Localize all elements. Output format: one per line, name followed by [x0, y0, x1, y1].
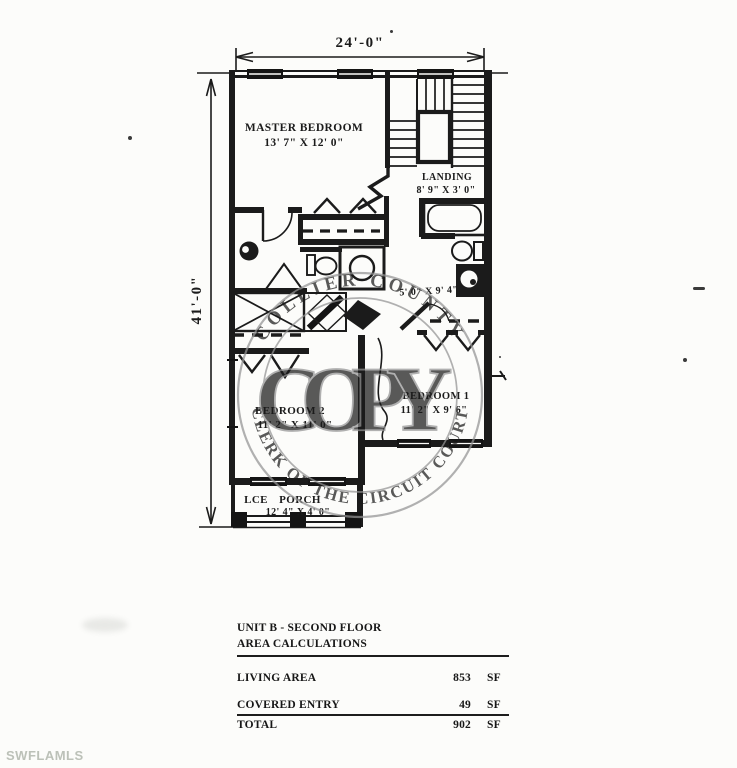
total-label: TOTAL — [237, 719, 437, 731]
scanned-floor-plan-page: { "brand": "SWFLAMLS", "stamp": { "cente… — [0, 0, 737, 768]
table-row-covered-entry: COVERED ENTRY 49 SF — [237, 699, 509, 711]
stair-treads-left — [390, 121, 417, 166]
scan-speck — [128, 136, 132, 140]
scan-speck — [683, 358, 687, 362]
window-top-3 — [417, 69, 454, 79]
scan-speck — [390, 30, 393, 33]
dimension-width-label: 24'-0" — [336, 35, 385, 51]
window-top-1 — [247, 69, 283, 79]
landing-size: 8' 9" X 3' 0" — [416, 185, 475, 196]
row-label: LIVING AREA — [237, 672, 437, 684]
total-unit: SF — [487, 719, 509, 731]
toilet-hall-bath — [307, 255, 337, 275]
scan-smudge — [82, 618, 128, 632]
scan-speck — [693, 287, 705, 290]
porch-lce-label: LCE — [244, 494, 268, 506]
table-rule-top — [237, 655, 509, 657]
landing-label: LANDING — [422, 172, 472, 183]
stair-treads-right — [452, 85, 484, 166]
total-value: 902 — [437, 719, 471, 731]
table-rule-bottom — [237, 714, 509, 716]
dimension-height-label: 41'-0" — [189, 276, 205, 325]
area-calculations-table: UNIT B - SECOND FLOOR AREA CALCULATIONS … — [237, 620, 509, 731]
window-bed2-1 — [250, 477, 287, 486]
stamp-copy-text: COPY — [256, 348, 461, 450]
toilet-main-bath — [452, 242, 483, 261]
mls-watermark: SWFLAMLS — [6, 748, 84, 763]
row-value: 853 — [437, 672, 471, 684]
table-title-line1: UNIT B - SECOND FLOOR — [237, 620, 509, 636]
row-label: COVERED ENTRY — [237, 699, 437, 711]
scan-speck — [499, 356, 501, 358]
master-bedroom-label: MASTER BEDROOM — [245, 122, 363, 134]
porch-size: 12' 4" X 4' 0" — [266, 507, 330, 518]
master-door — [263, 210, 292, 241]
landing-angled-wall — [358, 168, 388, 209]
master-bedroom-size: 13' 7" X 12' 0" — [264, 137, 343, 149]
row-value: 49 — [437, 699, 471, 711]
table-row-living-area: LIVING AREA 853 SF — [237, 672, 509, 684]
table-row-total: TOTAL 902 SF — [237, 719, 509, 731]
row-unit: SF — [487, 672, 509, 684]
row-unit: SF — [487, 699, 509, 711]
smoke-detector-symbol — [240, 242, 259, 261]
window-top-2 — [337, 69, 373, 79]
bathtub — [424, 201, 486, 235]
door-swing-triangle — [266, 264, 302, 289]
table-title-line2: AREA CALCULATIONS — [237, 636, 509, 652]
vanity-sink — [456, 264, 486, 297]
table-total-section: TOTAL 902 SF — [237, 714, 509, 731]
